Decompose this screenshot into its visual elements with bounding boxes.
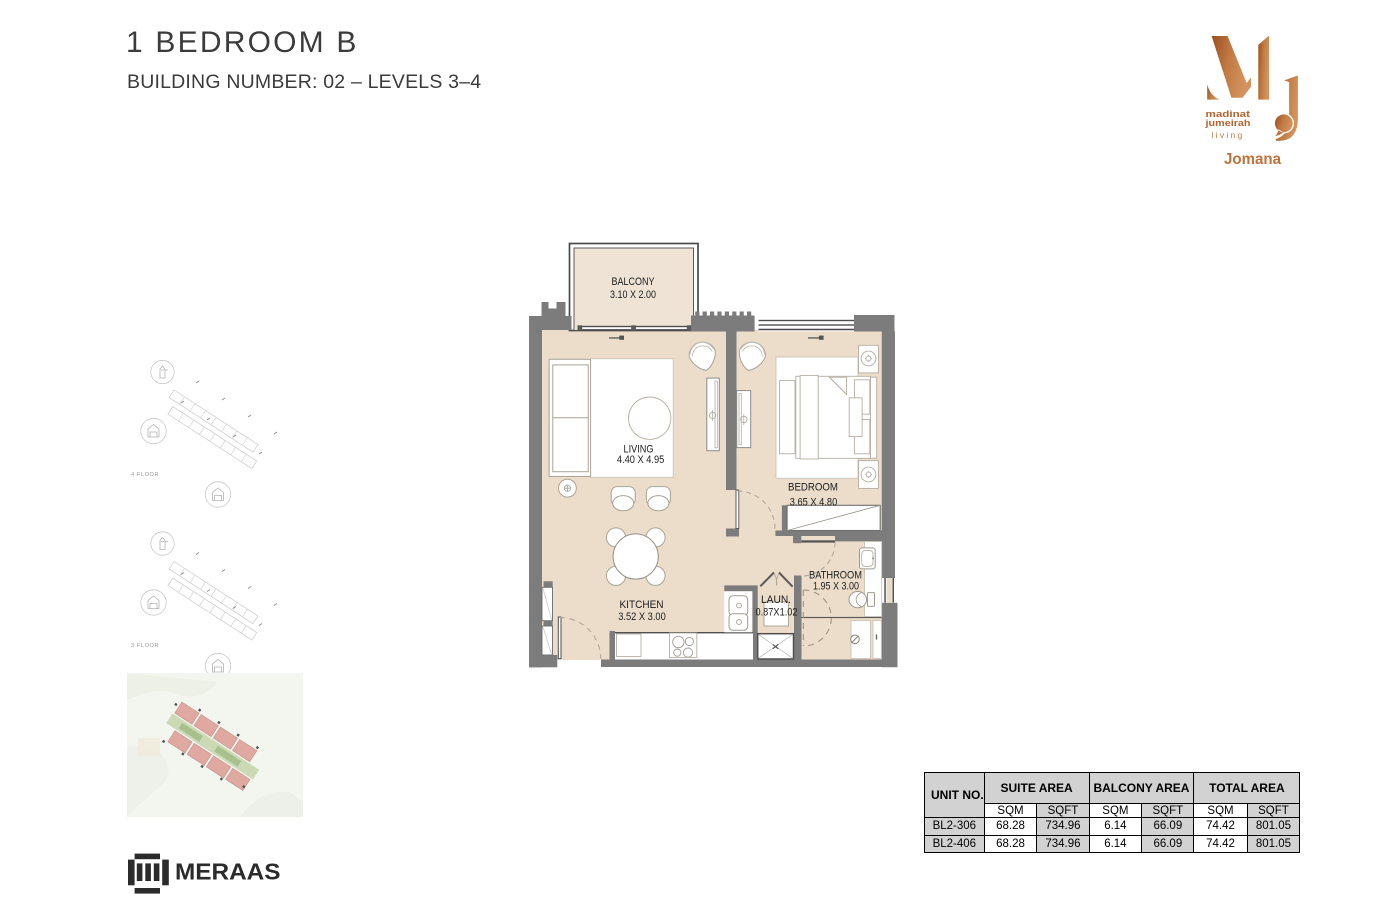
svg-text:3.52 X 3.00: 3.52 X 3.00 (618, 611, 666, 623)
svg-text:1.95 X 3.00: 1.95 X 3.00 (813, 581, 859, 593)
svg-text:4.40 X 4.95: 4.40 X 4.95 (617, 454, 665, 466)
svg-text:3 FLOOR: 3 FLOOR (131, 643, 159, 649)
svg-text:LAUN.: LAUN. (761, 594, 791, 606)
svg-text:0.87X1.02: 0.87X1.02 (756, 607, 798, 619)
svg-text:3.65 X 4.80: 3.65 X 4.80 (790, 496, 838, 508)
svg-text:3.10 X 2.00: 3.10 X 2.00 (610, 289, 656, 301)
svg-text:MERAAS: MERAAS (175, 859, 281, 885)
svg-text:BALCONY: BALCONY (612, 276, 655, 288)
svg-text:jumeirah: jumeirah (1204, 117, 1250, 128)
svg-text:4 FLOOR: 4 FLOOR (131, 472, 159, 478)
svg-text:BEDROOM: BEDROOM (788, 481, 838, 493)
svg-text:living: living (1212, 130, 1245, 140)
svg-text:KITCHEN: KITCHEN (620, 599, 664, 611)
svg-text:Jomana: Jomana (1224, 151, 1281, 168)
